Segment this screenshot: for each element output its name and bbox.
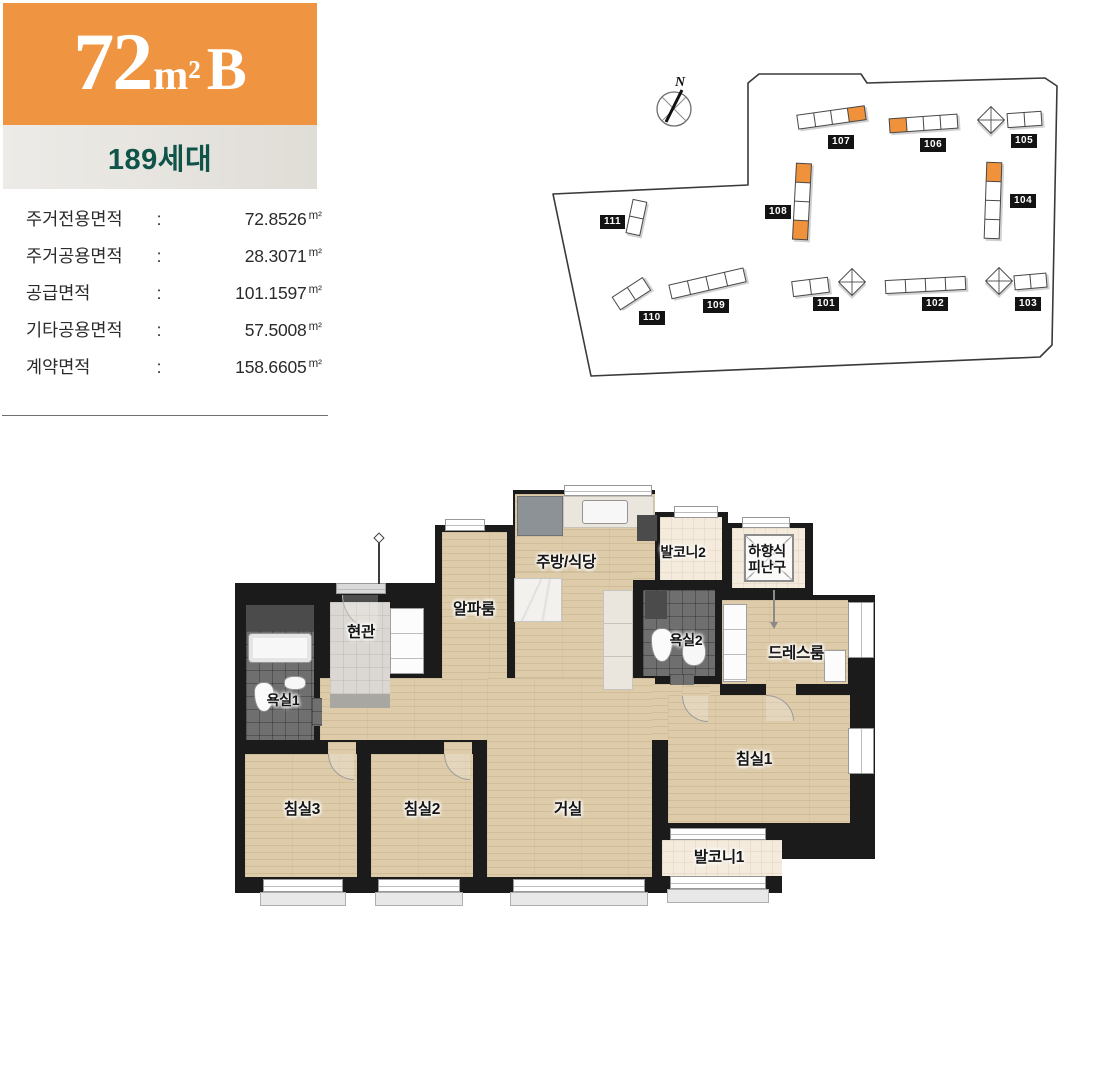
balcony1-bottom-window bbox=[670, 876, 766, 889]
label-kitchen: 주방/식당 bbox=[536, 554, 596, 572]
bed3-window-sill bbox=[260, 892, 346, 906]
label-dress: 드레스룸 bbox=[768, 645, 824, 663]
entry-top-window bbox=[336, 583, 386, 594]
area-unit: m² bbox=[309, 321, 322, 333]
kitchen-pantry bbox=[603, 590, 633, 690]
building-label-108: 108 bbox=[765, 205, 791, 219]
area-label: 공급면적 bbox=[26, 280, 152, 305]
balcony2-top-window bbox=[674, 506, 718, 518]
building-103 bbox=[1013, 273, 1046, 291]
households-band: 189세대 bbox=[3, 125, 317, 189]
label-bed2: 침실2 bbox=[404, 801, 440, 819]
kitchen-counter bbox=[517, 496, 563, 536]
balcony1-top-window bbox=[670, 828, 766, 840]
compass-north-label: N bbox=[675, 75, 685, 91]
households-count: 189세대 bbox=[108, 136, 212, 178]
alpha-top-window bbox=[445, 519, 485, 531]
building-label-110: 110 bbox=[639, 311, 665, 325]
area-row: 계약면적:158.6605m² bbox=[26, 354, 322, 376]
brochure-page: 72m²B 189세대 주거전용면적:72.8526m² 주거공용면적:28.3… bbox=[0, 0, 1100, 1077]
label-balcony2: 발코니2 bbox=[660, 544, 705, 560]
building-label-104: 104 bbox=[1010, 194, 1036, 208]
unit-variant: B bbox=[207, 35, 247, 104]
balcony1-window-sill bbox=[667, 889, 769, 903]
label-bed3: 침실3 bbox=[284, 801, 320, 819]
area-value: 72.8526 bbox=[166, 209, 307, 230]
label-living: 거실 bbox=[554, 801, 582, 819]
building-label-105: 105 bbox=[1011, 134, 1037, 148]
kitchen-top-window bbox=[564, 485, 652, 496]
building-label-111: 111 bbox=[600, 215, 625, 229]
building-label-106: 106 bbox=[920, 138, 946, 152]
highlight-unit bbox=[792, 220, 809, 241]
area-label: 주거공용면적 bbox=[26, 243, 152, 268]
area-value: 57.5008 bbox=[166, 320, 307, 341]
area-value: 28.3071 bbox=[166, 246, 307, 267]
area-unit: m² bbox=[309, 358, 322, 370]
compass-icon bbox=[657, 90, 691, 126]
unit-sqm: m² bbox=[153, 52, 201, 100]
site-plan: N bbox=[545, 60, 1100, 382]
area-value: 158.6605 bbox=[166, 357, 307, 378]
entry-direction-marker bbox=[378, 542, 380, 584]
dress-right-window bbox=[848, 602, 874, 658]
bath1-sink-icon bbox=[284, 676, 306, 690]
utility-box bbox=[637, 515, 657, 541]
building-label-102: 102 bbox=[922, 297, 948, 311]
bed2-window-sill bbox=[375, 892, 463, 906]
building-105 bbox=[1007, 111, 1042, 128]
label-bed1: 침실1 bbox=[736, 751, 772, 769]
area-unit: m² bbox=[309, 284, 322, 296]
building-label-101: 101 bbox=[813, 297, 839, 311]
area-label: 계약면적 bbox=[26, 354, 152, 379]
hatch-top-window bbox=[742, 517, 790, 528]
bath2-washer bbox=[645, 591, 667, 619]
bed2-bottom-window bbox=[378, 879, 460, 892]
building-label-107: 107 bbox=[828, 135, 854, 149]
area-row: 주거전용면적:72.8526m² bbox=[26, 206, 322, 228]
section-divider bbox=[2, 415, 328, 416]
area-label: 기타공용면적 bbox=[26, 317, 152, 342]
area-unit: m² bbox=[309, 210, 322, 222]
label-entry: 현관 bbox=[347, 624, 375, 642]
area-value: 101.1597 bbox=[166, 283, 307, 304]
hatch-arrow-line bbox=[773, 590, 775, 622]
area-row: 주거공용면적:28.3071m² bbox=[26, 243, 322, 265]
area-unit: m² bbox=[309, 247, 322, 259]
unit-type-badge: 72m²B bbox=[3, 3, 317, 125]
label-alpha: 알파룸 bbox=[453, 601, 495, 619]
building-104 bbox=[984, 162, 1003, 239]
kitchen-sink-icon bbox=[582, 500, 628, 524]
bath1-door-gap bbox=[312, 698, 322, 726]
entry-step-strip bbox=[330, 694, 390, 708]
bath2-door-gap bbox=[670, 674, 694, 685]
highlight-unit bbox=[795, 163, 812, 184]
label-hatch: 하향식 피난구 bbox=[748, 543, 786, 575]
bath1-shelf bbox=[246, 605, 314, 631]
floor-plan: 주방/식당 발코니2 하향식 피난구 알파룸 현관 욕실2 드레스룸 욕실1 침… bbox=[230, 462, 890, 932]
kitchen-island bbox=[514, 578, 562, 622]
building-label-103: 103 bbox=[1015, 297, 1041, 311]
hatch-arrow-head bbox=[770, 622, 778, 629]
building-label-109: 109 bbox=[703, 299, 729, 313]
bed3-bottom-window bbox=[263, 879, 343, 892]
room-living-floor bbox=[487, 678, 652, 877]
bed1-right-window bbox=[848, 728, 874, 774]
area-row: 기타공용면적:57.5008m² bbox=[26, 317, 322, 339]
entry-shoe-cabinet bbox=[390, 608, 424, 674]
area-info-list: 주거전용면적:72.8526m² 주거공용면적:28.3071m² 공급면적:1… bbox=[26, 206, 322, 391]
highlight-unit bbox=[986, 162, 1003, 183]
entry-marker-head bbox=[373, 532, 384, 543]
unit-size: 72 bbox=[73, 3, 151, 121]
label-balcony1: 발코니1 bbox=[694, 849, 744, 867]
living-window-sill bbox=[510, 892, 648, 906]
living-bottom-window bbox=[513, 879, 645, 892]
label-bath2: 욕실2 bbox=[670, 632, 703, 648]
dress-wardrobe bbox=[723, 604, 747, 682]
bathtub-icon bbox=[248, 633, 312, 663]
area-label: 주거전용면적 bbox=[26, 206, 152, 231]
label-bath1: 욕실1 bbox=[267, 692, 300, 708]
highlight-unit bbox=[847, 105, 867, 122]
area-row: 공급면적:101.1597m² bbox=[26, 280, 322, 302]
dress-cabinet bbox=[824, 650, 846, 682]
